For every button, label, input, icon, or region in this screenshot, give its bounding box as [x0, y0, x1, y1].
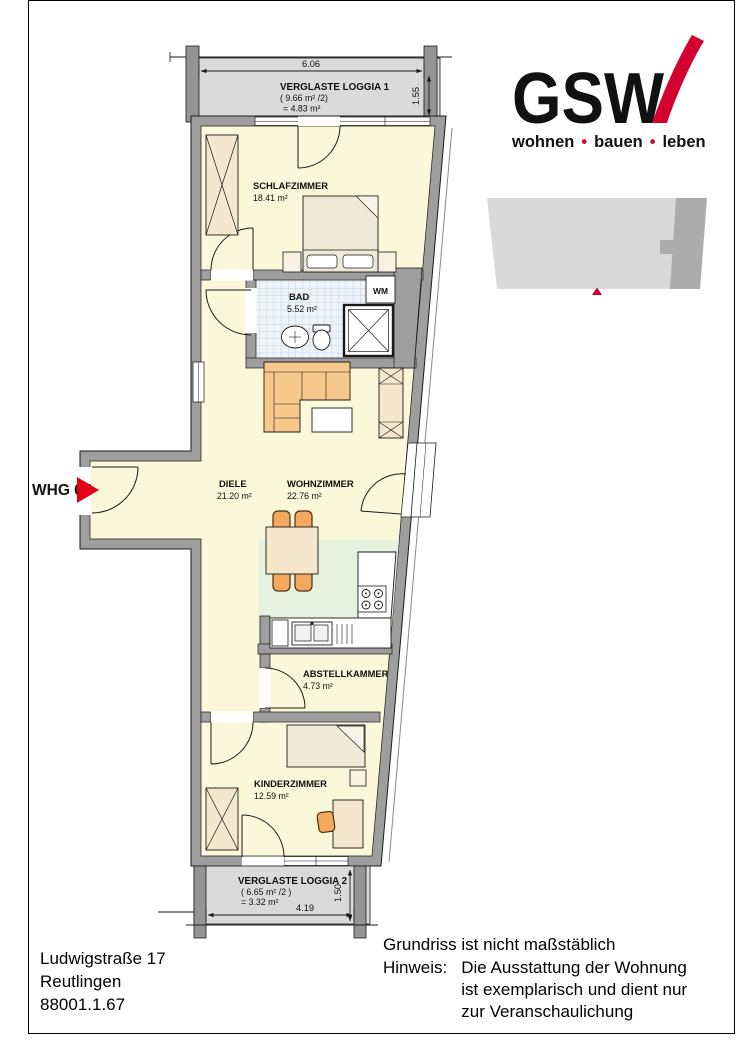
hinweis-label: Hinweis: — [383, 957, 447, 979]
diele-name: DIELE — [219, 478, 247, 489]
bad-name: BAD — [289, 291, 310, 302]
washing-machine-label: WM — [373, 286, 388, 296]
bad-area: 5.52 m² — [287, 304, 317, 314]
abstellkammer-area: 4.73 m² — [303, 681, 333, 691]
kinderzimmer-area: 12.59 m² — [254, 791, 289, 801]
apartment-outline — [80, 116, 452, 866]
loggia1-half-area: = 4.83 m² — [283, 104, 320, 114]
loggia1-pillar-right — [424, 46, 437, 122]
kitchen-cabinet — [272, 620, 288, 646]
loggia2-name: VERGLASTE LOGGIA 2 — [238, 876, 348, 887]
schlafzimmer-name: SCHLAFZIMMER — [253, 180, 328, 191]
coffee-table — [312, 408, 352, 432]
scale-note: Grundriss ist nicht maßstäblich — [383, 935, 615, 955]
address-number: 88001.1.67 — [40, 993, 166, 1016]
logo: GSW wohnen•bauen•leben — [511, 35, 706, 151]
dining-table — [266, 527, 318, 574]
wohnzimmer-area: 22.76 m² — [287, 491, 322, 501]
loggia-1: 6.06 1.55 VERGLASTE LOGGIA 1 ( 9.66 m² /… — [170, 46, 452, 122]
unit-location-notch — [660, 240, 678, 254]
loggia2-width-dim: 4.19 — [296, 903, 314, 913]
address-block: Ludwigstraße 17 Reutlingen 88001.1.67 — [40, 947, 166, 1016]
loggia2-half-area: = 3.32 m² — [241, 897, 278, 907]
desk — [333, 800, 363, 848]
loggia2-depth-dim: 1.50 — [333, 884, 343, 902]
logo-tagline: wohnen•bauen•leben — [511, 133, 706, 151]
wohnzimmer-furniture — [264, 362, 403, 438]
key-plan — [487, 198, 707, 295]
loggia1-name: VERGLASTE LOGGIA 1 — [280, 82, 390, 93]
pillow-right — [343, 255, 373, 268]
faucet — [310, 622, 313, 625]
abstellkammer-name: ABSTELLKAMMER — [303, 668, 389, 679]
address-city: Reutlingen — [40, 970, 166, 993]
loggia-2: VERGLASTE LOGGIA 2 ( 6.65 m² /2 ) = 3.32… — [158, 866, 378, 938]
address-street: Ludwigstraße 17 — [40, 947, 166, 970]
kinderzimmer-name: KINDERZIMMER — [254, 778, 327, 789]
tagline-dot-icon: • — [581, 133, 587, 151]
loggia2-pillar-right — [354, 866, 366, 938]
loggia1-calc: ( 9.66 m² /2) — [280, 93, 328, 103]
diele-area: 21.20 m² — [217, 491, 252, 501]
logo-text: GSW — [512, 59, 664, 139]
floorplan-page: { "logo": { "text": "GSW", "tagline": ["… — [0, 0, 745, 1053]
shelf-unit — [379, 368, 403, 438]
loggia2-calc: ( 6.65 m² /2 ) — [241, 887, 291, 897]
floor-plan-canvas: 6.06 1.55 VERGLASTE LOGGIA 1 ( 9.66 m² /… — [0, 0, 745, 1053]
loggia1-depth-dim: 1.55 — [411, 87, 421, 105]
pillow-left — [307, 255, 337, 268]
loggia1-pillar-left — [186, 46, 199, 122]
schlafzimmer-area: 18.41 m² — [253, 193, 288, 203]
nightstand-right — [378, 252, 396, 272]
loggia1-width-dim: 6.06 — [302, 59, 320, 69]
hinweis-text: Die Ausstattung der Wohnung ist exemplar… — [461, 957, 687, 1023]
stove — [358, 586, 386, 612]
tagline-dot-icon: • — [650, 133, 656, 151]
toilet — [313, 330, 330, 350]
loggia2-pillar-left — [194, 866, 206, 938]
hinweis-block: Hinweis: Die Ausstattung der Wohnung ist… — [383, 957, 687, 1023]
nightstand — [350, 770, 366, 786]
desk-chair — [317, 811, 336, 833]
nightstand-left — [283, 252, 301, 272]
wohnzimmer-name: WOHNZIMMER — [287, 478, 354, 489]
